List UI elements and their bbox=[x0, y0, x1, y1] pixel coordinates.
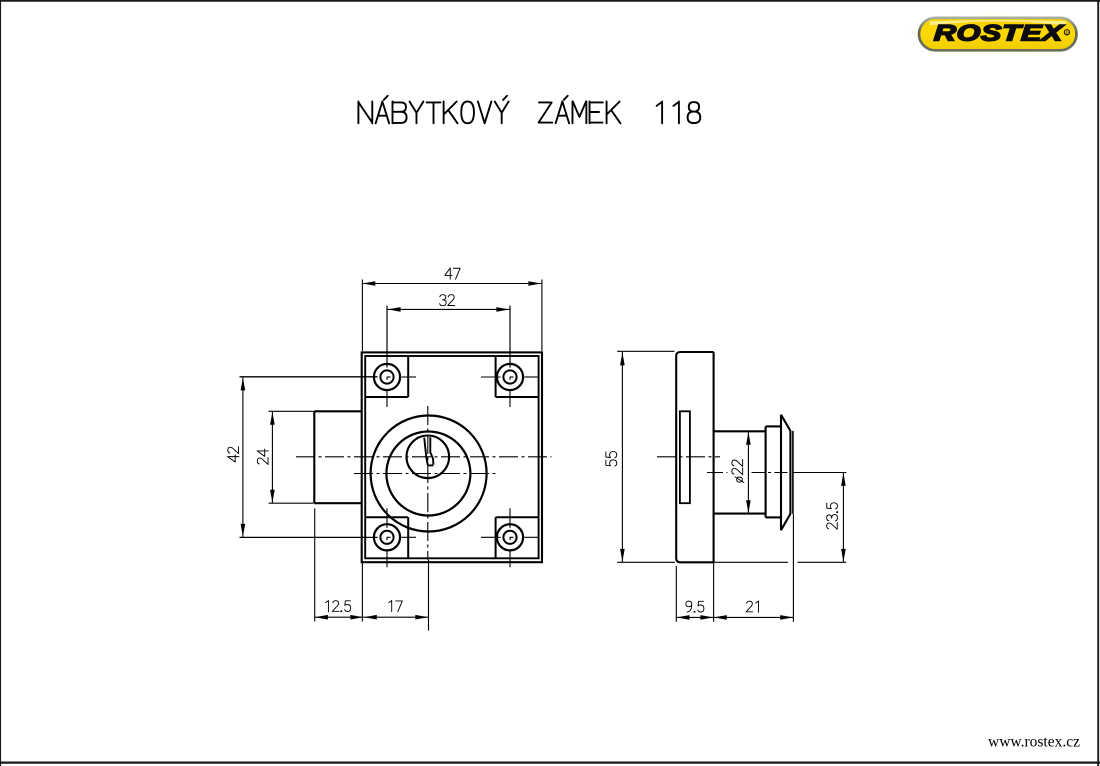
svg-text:ROSTEX: ROSTEX bbox=[933, 21, 1065, 46]
svg-text:www.rostex.cz: www.rostex.cz bbox=[988, 734, 1080, 751]
